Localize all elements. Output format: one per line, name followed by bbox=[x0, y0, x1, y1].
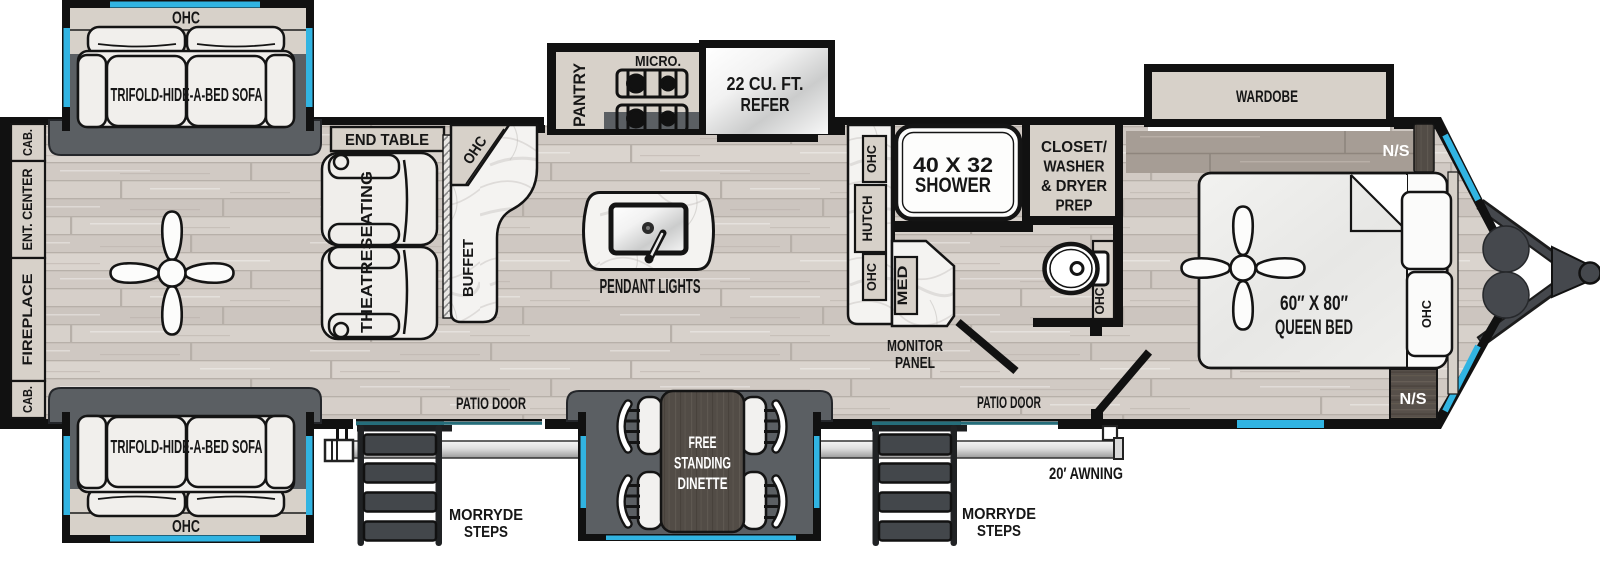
svg-text:MORRYDE: MORRYDE bbox=[962, 506, 1036, 523]
svg-text:BUFFET: BUFFET bbox=[461, 239, 477, 297]
svg-text:OHC: OHC bbox=[172, 8, 200, 28]
svg-text:PANTRY: PANTRY bbox=[571, 63, 589, 127]
svg-text:STEPS: STEPS bbox=[464, 524, 508, 541]
svg-text:MORRYDE: MORRYDE bbox=[449, 507, 523, 524]
svg-text:SHOWER: SHOWER bbox=[915, 174, 991, 197]
svg-text:MONITOR: MONITOR bbox=[887, 338, 943, 355]
svg-text:THEATRESEATING: THEATRESEATING bbox=[359, 171, 376, 333]
svg-text:PENDANT LIGHTS: PENDANT LIGHTS bbox=[600, 276, 701, 298]
svg-text:STANDING: STANDING bbox=[674, 454, 731, 473]
svg-text:ENT. CENTER: ENT. CENTER bbox=[20, 168, 35, 250]
svg-text:& DRYER: & DRYER bbox=[1041, 178, 1107, 195]
svg-text:WASHER: WASHER bbox=[1044, 159, 1105, 176]
svg-text:PREP: PREP bbox=[1056, 198, 1093, 215]
svg-text:END TABLE: END TABLE bbox=[345, 132, 429, 149]
svg-text:MED: MED bbox=[895, 265, 910, 305]
svg-text:PATIO DOOR: PATIO DOOR bbox=[456, 394, 526, 413]
svg-text:CAB.: CAB. bbox=[20, 129, 35, 156]
svg-text:MICRO.: MICRO. bbox=[635, 53, 681, 70]
svg-text:60″ X 80″: 60″ X 80″ bbox=[1280, 292, 1348, 315]
svg-text:22 CU. FT.: 22 CU. FT. bbox=[727, 74, 804, 94]
svg-text:TRIFOLD-HIDE-A-BED SOFA: TRIFOLD-HIDE-A-BED SOFA bbox=[111, 85, 263, 105]
svg-text:PANEL: PANEL bbox=[895, 355, 935, 372]
svg-text:OHC: OHC bbox=[1419, 299, 1434, 328]
svg-text:TRIFOLD-HIDE-A-BED SOFA: TRIFOLD-HIDE-A-BED SOFA bbox=[111, 437, 263, 457]
svg-text:OHC: OHC bbox=[864, 262, 879, 291]
svg-text:OHC: OHC bbox=[1093, 288, 1107, 315]
svg-text:QUEEN BED: QUEEN BED bbox=[1275, 316, 1353, 339]
svg-text:OHC: OHC bbox=[172, 516, 200, 536]
svg-text:DINETTE: DINETTE bbox=[678, 474, 728, 493]
svg-text:CAB.: CAB. bbox=[20, 386, 35, 413]
svg-text:WARDOBE: WARDOBE bbox=[1236, 88, 1298, 106]
svg-text:CLOSET/: CLOSET/ bbox=[1041, 139, 1108, 156]
svg-text:N/S: N/S bbox=[1383, 143, 1410, 160]
svg-text:20′ AWNING: 20′ AWNING bbox=[1049, 465, 1123, 483]
svg-text:N/S: N/S bbox=[1400, 391, 1427, 408]
svg-text:OHC: OHC bbox=[864, 144, 879, 173]
svg-text:STEPS: STEPS bbox=[977, 523, 1021, 540]
svg-text:FIREPLACE: FIREPLACE bbox=[20, 274, 35, 366]
svg-text:PATIO DOOR: PATIO DOOR bbox=[977, 393, 1041, 412]
svg-text:HUTCH: HUTCH bbox=[859, 196, 875, 242]
svg-text:REFER: REFER bbox=[741, 95, 790, 115]
svg-text:FREE: FREE bbox=[689, 433, 717, 452]
